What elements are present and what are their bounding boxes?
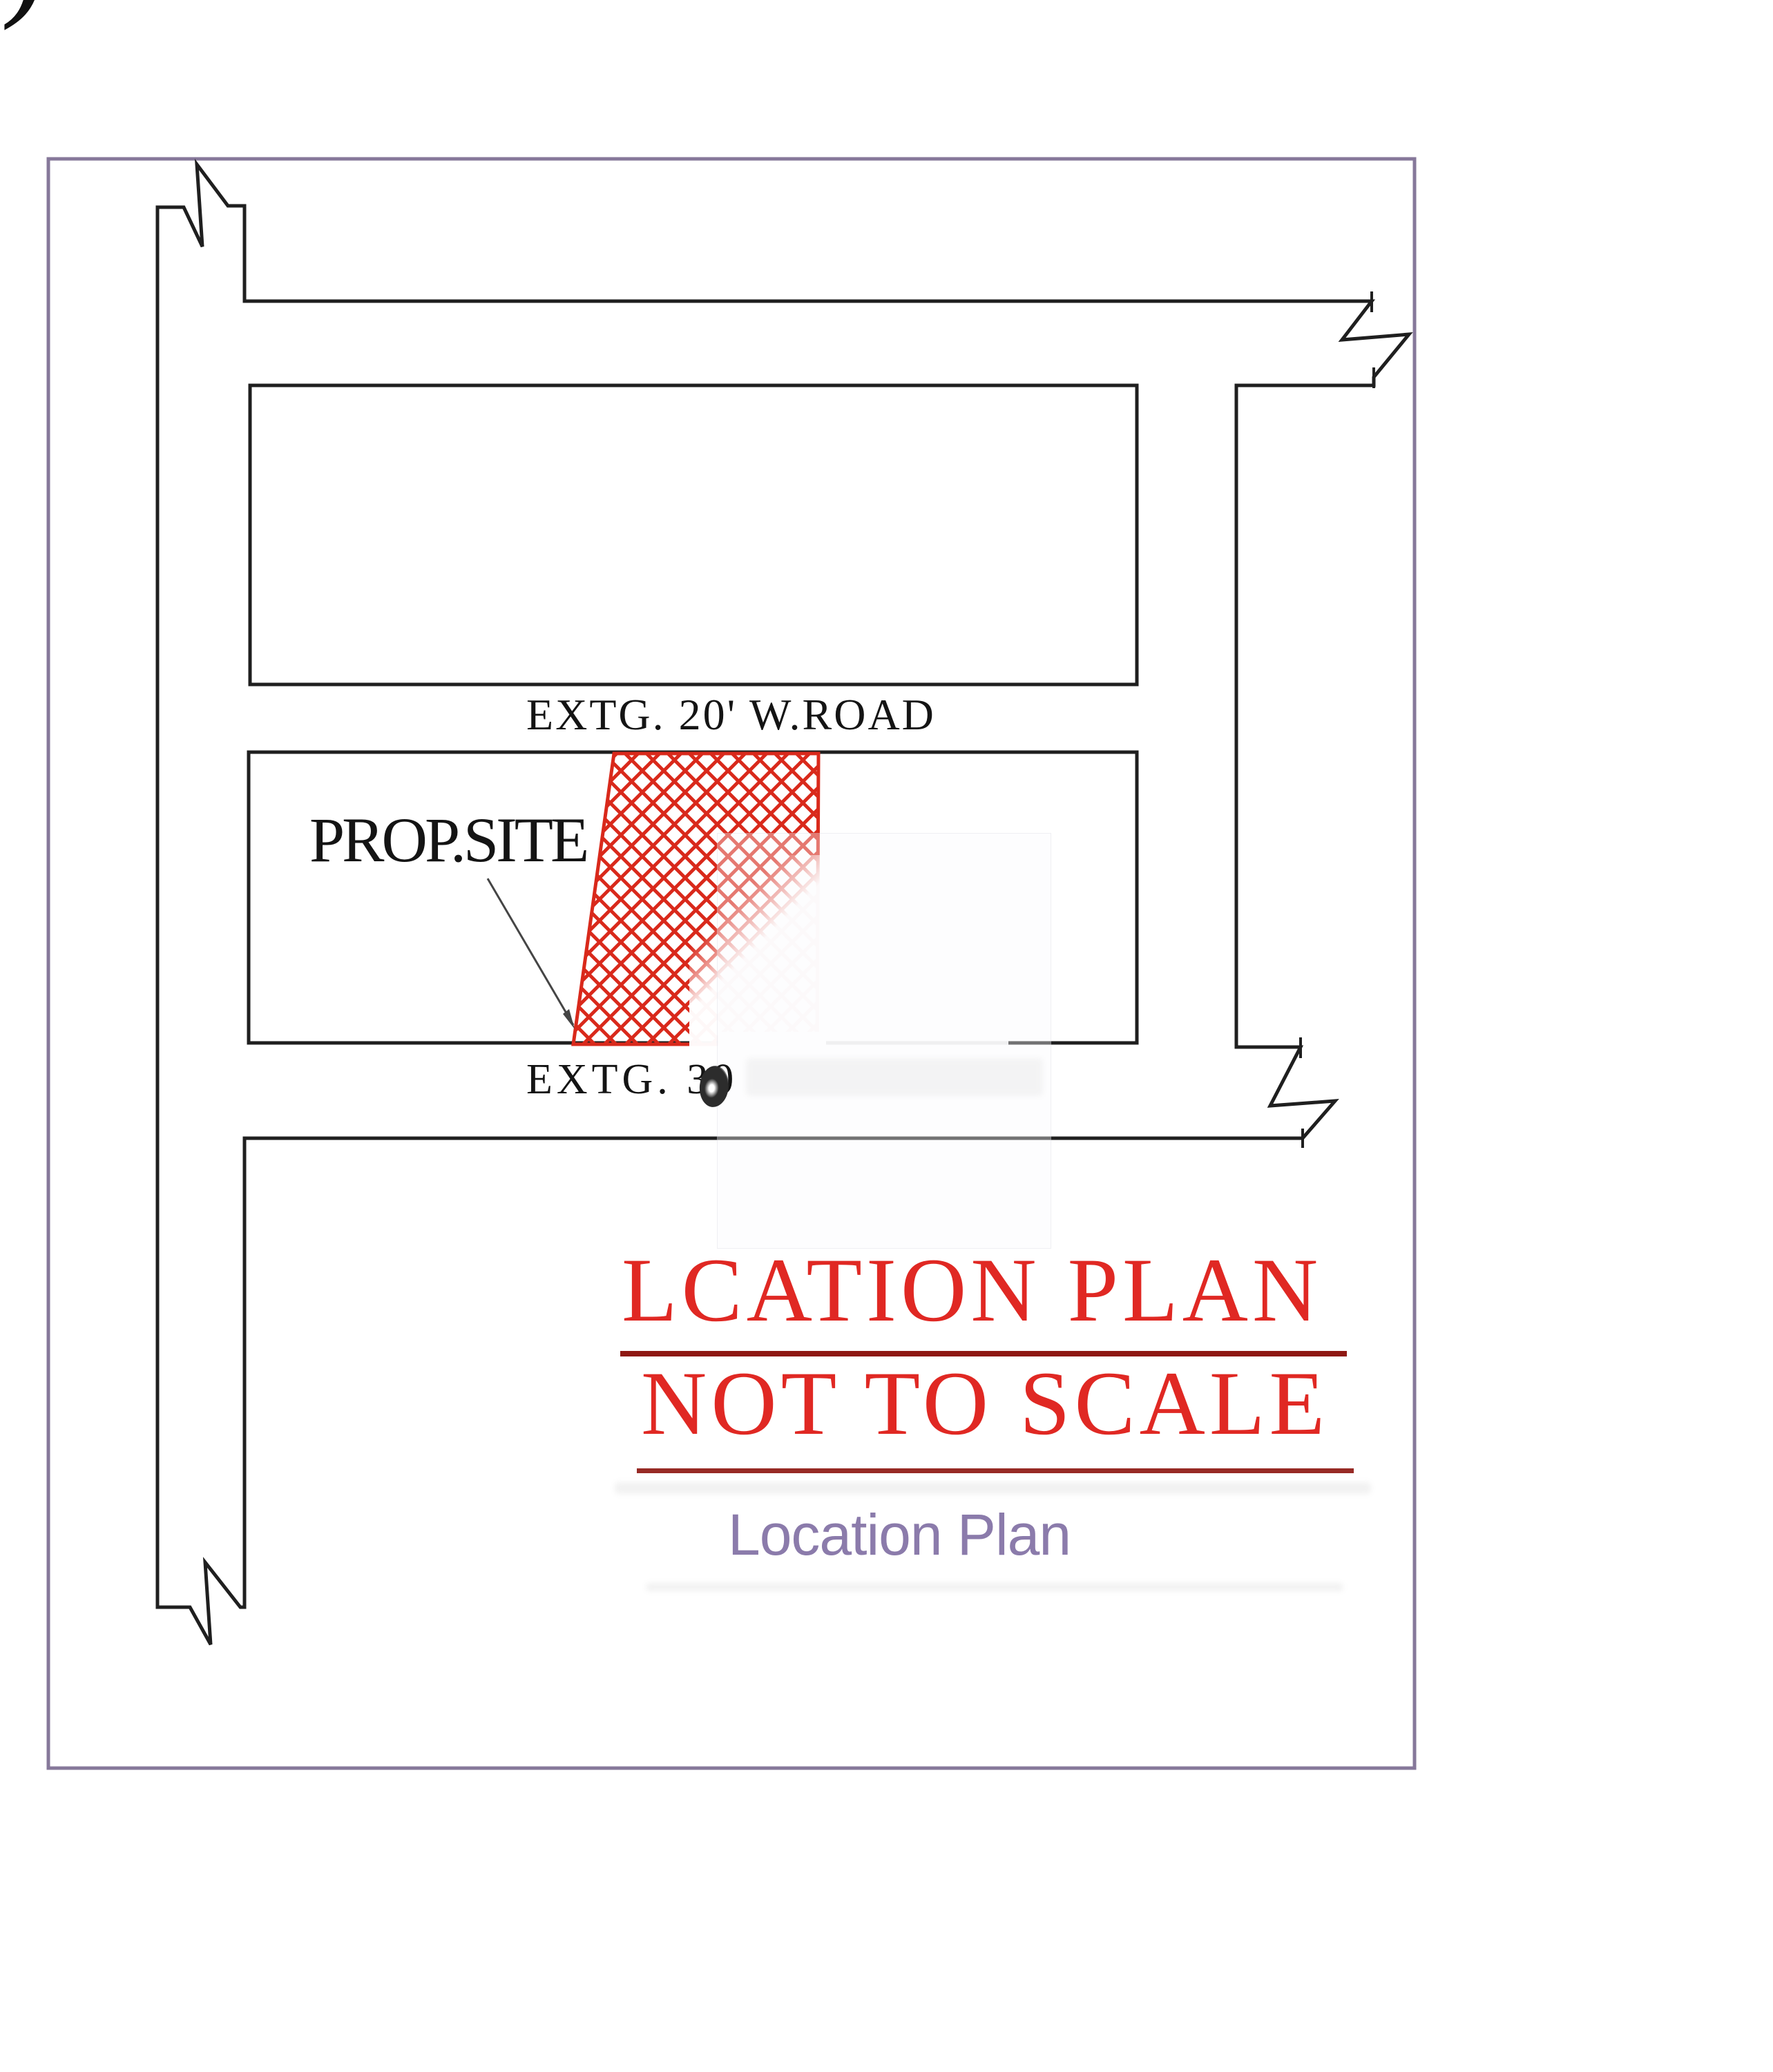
block-upper	[250, 385, 1137, 684]
title-underline-2	[637, 1468, 1354, 1473]
title-line-1: LCATION PLAN	[622, 1245, 1322, 1336]
prop-site-leader-line	[488, 879, 573, 1025]
watermark-smudge	[615, 1482, 1371, 1494]
plan-sheet: ) EXTG. 20' W.ROAD PROP.SITE EXTG.	[0, 0, 1773, 2072]
prop-site-label: PROP.SITE	[309, 808, 586, 872]
middle-road-label: EXTG. 20' W.ROAD	[526, 693, 936, 737]
watermark-smudge	[746, 1058, 1043, 1096]
title-line-2: NOT TO SCALE	[641, 1358, 1329, 1449]
prop-site-hatch	[573, 754, 818, 1044]
watermark-smudge	[646, 1583, 1343, 1591]
location-plan-drawing	[0, 0, 1773, 2072]
caption-location-plan: Location Plan	[728, 1506, 1071, 1564]
